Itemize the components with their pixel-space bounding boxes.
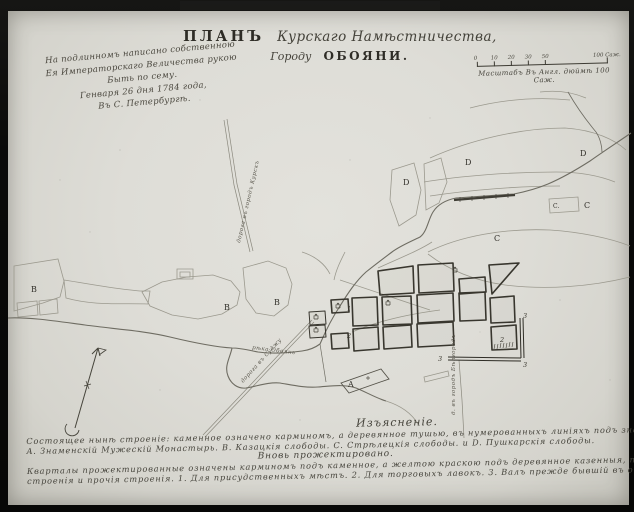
scale-end-label: 100 Саж. (593, 52, 621, 59)
map-marker-c: C. (553, 203, 559, 210)
scale-tick: 10 (494, 61, 495, 66)
map-marker-3: 3 (438, 355, 442, 363)
map-marker-2: 2 (346, 332, 351, 340)
paper-speckles (59, 99, 610, 433)
map-path-label: д. въ городъ Бѣлгородъ (451, 334, 457, 415)
map-marker-2: 2 (499, 336, 504, 344)
map-marker-b: B (224, 303, 230, 312)
scale-tick: 50 (545, 60, 546, 65)
map-marker-3: 3 (523, 361, 527, 369)
map-marker-a: A (347, 380, 354, 389)
legend-block: Изъясненіе. Состоящее нынѣ строеніе: кам… (26, 412, 625, 487)
map-marker-3: 3 (523, 312, 527, 320)
map-marker-1: 1 (347, 305, 351, 313)
title-region-script: Курскаго Намѣстничества, (277, 29, 497, 45)
scale-tick: 0 (477, 62, 478, 67)
map-labels: BBBDDDCC.CA122333дорога въ городъ Курскъ… (31, 149, 590, 415)
title-city-word: Городу (270, 50, 311, 63)
map-marker-c: C (584, 201, 590, 210)
map-marker-b: B (274, 298, 280, 307)
map-marker-d: D (465, 158, 471, 167)
sloboda-outlines (14, 91, 630, 424)
city-blocks (309, 263, 519, 351)
scanned-historical-map: { "title": { "word_plan": "ПЛАНЪ", "scri… (0, 0, 634, 512)
scale-tick: 30 (528, 60, 529, 65)
map-marker-d: D (580, 149, 586, 158)
map-marker-c: C (494, 234, 500, 243)
map-marker-d: D (403, 178, 409, 187)
scale-tick: 20 (511, 61, 512, 66)
title-city-name: ОБОЯНИ. (323, 49, 409, 63)
map-marker-b: B (31, 285, 37, 294)
rivers (8, 92, 631, 401)
scale-bar: 010203050 100 Саж. Масштабъ Въ Англ. дюй… (477, 53, 618, 83)
